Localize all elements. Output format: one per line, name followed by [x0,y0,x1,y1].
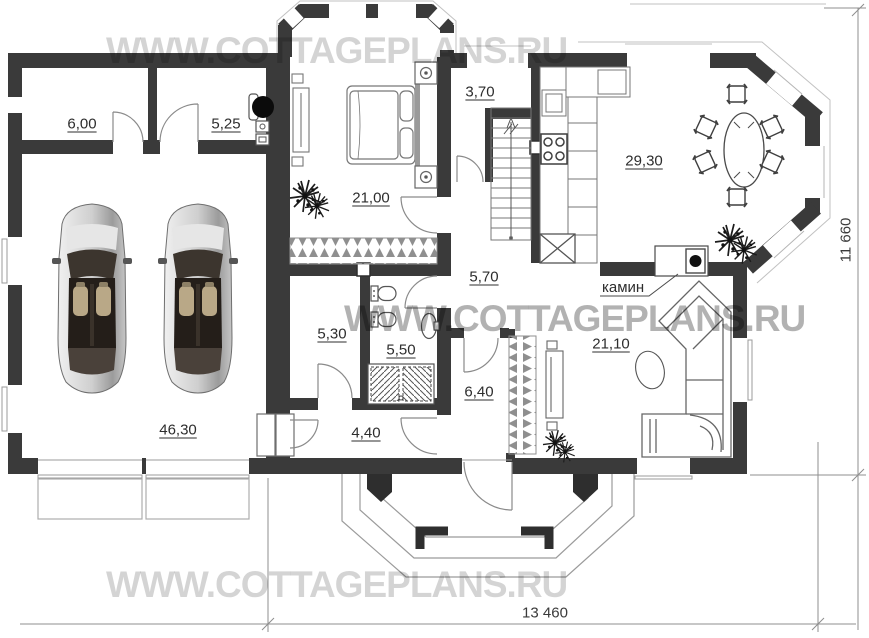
room-label-garage: 46,30 [159,422,197,439]
room-label-living-room: 21,10 [592,336,630,353]
room-label-boiler-room: 5,25 [211,116,240,133]
plant-living [543,430,575,462]
watermark-middle: WWW.COTTAGEPLANS.RU [344,298,805,340]
chimney-block [257,414,294,456]
radiator-bedroom [292,74,309,166]
porch-pillars [367,474,598,502]
stove [541,134,567,164]
room-label-bedroom: 21,00 [352,190,390,207]
car-left [52,204,132,393]
fridge [540,234,575,263]
room-label-entry-hall: 6,40 [464,384,493,401]
dimension-width: 13 460 [522,605,568,622]
tv-unit [546,341,563,430]
bedroom-wardrobe [290,238,437,264]
room-label-kitchen-dining: 29,30 [625,153,663,170]
garage-door-aprons [38,479,249,519]
room-label-storage: 6,00 [67,116,96,133]
dining-table [724,113,764,187]
watermark-bottom: WWW.COTTAGEPLANS.RU [106,564,567,606]
room-label-vestibule: 4,40 [351,425,380,442]
car-right [158,204,238,393]
pouf [632,348,669,392]
shower [368,364,434,404]
watermark-top: WWW.COTTAGEPLANS.RU [106,30,567,72]
room-label-stair-hall: 3,70 [465,84,494,101]
dimension-height: 11 660 [838,218,855,263]
hall-wardrobe [509,336,536,454]
floor-plan: WWW.COTTAGEPLANS.RU WWW.COTTAGEPLANS.RU … [0,0,869,638]
room-label-hall: 5,70 [469,269,498,286]
plant-bedroom [290,180,329,219]
bed [347,84,420,166]
stairs [491,108,531,240]
room-label-bathroom: 5,50 [386,342,415,359]
room-label-dressing: 5,30 [317,326,346,343]
porch-corner-pillars [420,531,549,549]
fireplace-label: камин [602,279,644,296]
